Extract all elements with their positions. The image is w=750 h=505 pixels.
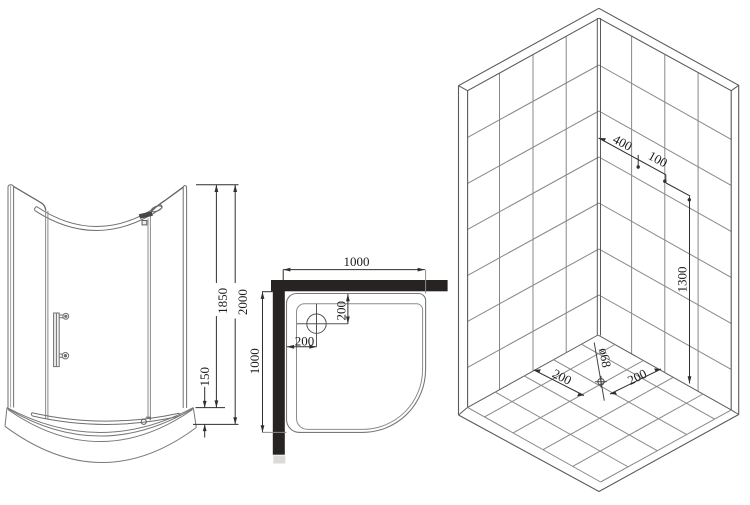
svg-text:1850: 1850 (215, 288, 230, 314)
svg-text:1300: 1300 (674, 267, 689, 293)
svg-text:200: 200 (333, 301, 348, 321)
svg-text:2000: 2000 (235, 289, 250, 315)
svg-text:200: 200 (295, 334, 315, 349)
svg-text:1000: 1000 (247, 348, 262, 374)
svg-text:150: 150 (197, 367, 212, 387)
svg-text:1000: 1000 (344, 254, 370, 269)
